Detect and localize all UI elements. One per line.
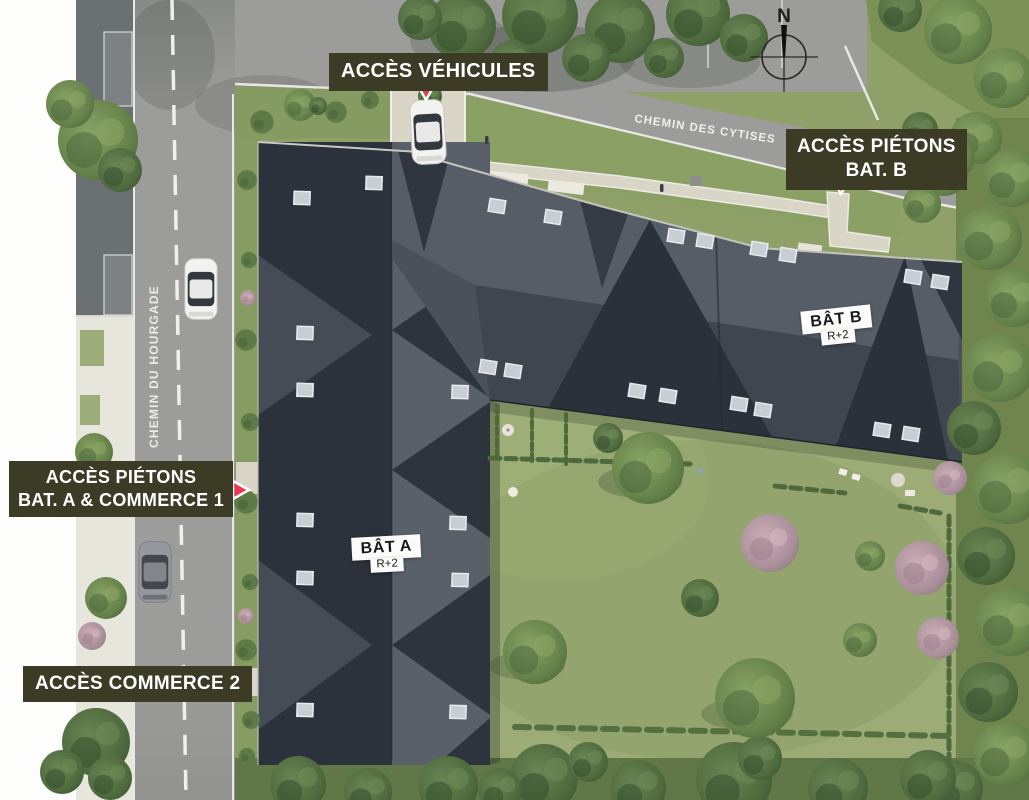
site-plan: CHEMIN DES CYTISES CHEMIN DU HOURGADE N … xyxy=(0,0,1029,800)
building-a-name: BÂT A xyxy=(351,534,421,561)
access-commerce-2-label: ACCÈS COMMERCE 2 xyxy=(23,666,252,702)
access-pedestrians-a-label: ACCÈS PIÉTONS BAT. A & COMMERCE 1 xyxy=(9,461,233,517)
gray-car-road xyxy=(139,542,171,603)
access-pedestrians-b-label: ACCÈS PIÉTONS BAT. B xyxy=(786,129,967,190)
access-pedestrians-a-line2: BAT. A & COMMERCE 1 xyxy=(18,489,224,512)
building-a-floors: R+2 xyxy=(370,557,404,573)
access-pedestrians-b-line1: ACCÈS PIÉTONS xyxy=(797,135,956,159)
road-name-hourgade: CHEMIN DU HOURGADE xyxy=(147,285,161,448)
compass-north-label: N xyxy=(777,6,791,27)
access-pedestrians-a-line1: ACCÈS PIÉTONS xyxy=(18,466,224,489)
access-vehicles-label: ACCÈS VÉHICULES xyxy=(329,53,548,91)
building-a-label: BÂT A R+2 xyxy=(351,534,422,574)
building-b-label: BÂT B R+2 xyxy=(800,304,873,347)
access-pedestrians-b-line2: BAT. B xyxy=(797,159,956,183)
white-car-road xyxy=(185,259,217,320)
white-car-driveway xyxy=(409,99,446,165)
